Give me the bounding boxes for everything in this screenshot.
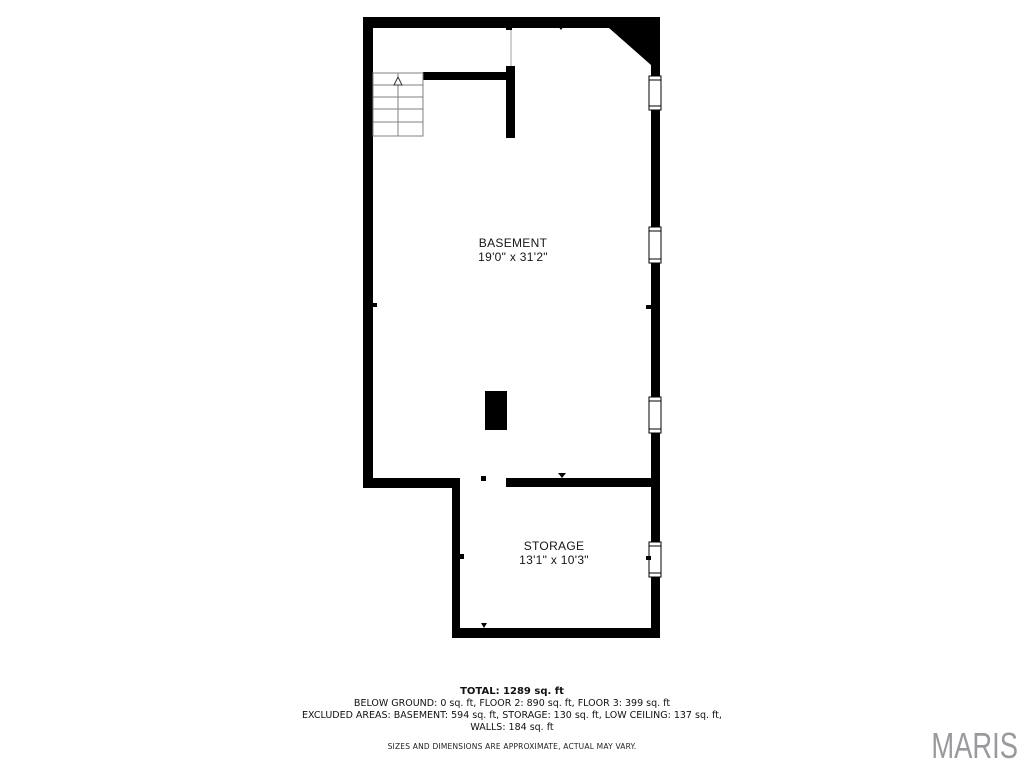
wall-storage-left bbox=[452, 478, 460, 638]
storage-room-dimensions: 13'1" x 10'3" bbox=[519, 553, 589, 567]
tick-mark bbox=[481, 623, 487, 628]
window-1 bbox=[649, 76, 661, 110]
excluded-areas-line: EXCLUDED AREAS: BASEMENT: 594 sq. ft, ST… bbox=[0, 710, 1024, 722]
wall-basement-bottom-left bbox=[363, 478, 460, 488]
wall-corner-chamfer bbox=[609, 28, 651, 65]
wall-basement-storage-divider bbox=[506, 478, 652, 487]
tick-mark bbox=[646, 556, 651, 560]
maris-watermark: MARIS bbox=[931, 728, 1018, 764]
tick-mark bbox=[459, 554, 464, 559]
floor-areas-line: BELOW GROUND: 0 sq. ft, FLOOR 2: 890 sq.… bbox=[0, 698, 1024, 710]
basement-room-dimensions: 19'0" x 31'2" bbox=[478, 250, 548, 264]
window-2 bbox=[649, 227, 661, 263]
disclaimer-text: SIZES AND DIMENSIONS ARE APPROXIMATE, AC… bbox=[0, 742, 1024, 751]
tick-mark bbox=[481, 476, 486, 481]
support-pillar bbox=[485, 391, 507, 430]
floorplan-page: BASEMENT 19'0" x 31'2" STORAGE 13'1" x 1… bbox=[0, 0, 1024, 768]
walls-area-line: WALLS: 184 sq. ft bbox=[0, 722, 1024, 734]
basement-room-label: BASEMENT bbox=[479, 236, 548, 250]
storage-room-label: STORAGE bbox=[524, 539, 585, 553]
wall-interior-vertical bbox=[506, 66, 515, 138]
wall-stair-side bbox=[423, 72, 506, 80]
staircase bbox=[373, 73, 423, 136]
wall-storage-bottom bbox=[452, 628, 660, 638]
total-area-line: TOTAL: 1289 sq. ft bbox=[0, 686, 1024, 698]
tick-mark bbox=[646, 305, 651, 309]
tick-mark bbox=[372, 303, 377, 307]
area-summary: TOTAL: 1289 sq. ft BELOW GROUND: 0 sq. f… bbox=[0, 686, 1024, 734]
window-3 bbox=[649, 397, 661, 433]
tick-mark bbox=[506, 26, 512, 30]
tick-mark bbox=[558, 473, 566, 478]
floorplan-drawing: BASEMENT 19'0" x 31'2" STORAGE 13'1" x 1… bbox=[0, 0, 1024, 768]
wall-left bbox=[363, 17, 373, 488]
